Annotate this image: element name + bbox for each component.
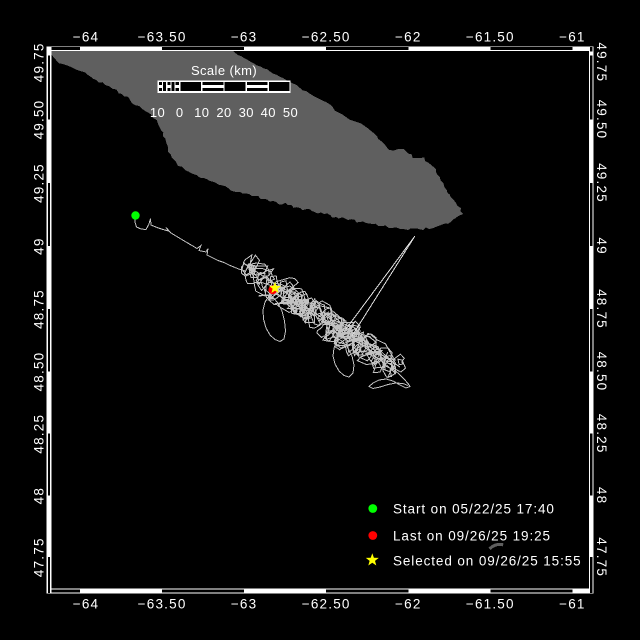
svg-text:0: 0 <box>176 105 184 120</box>
svg-text:−62: −62 <box>395 597 422 612</box>
svg-text:−63.50: −63.50 <box>138 30 187 45</box>
svg-text:49.50: 49.50 <box>32 100 47 140</box>
svg-text:48.50: 48.50 <box>32 352 47 392</box>
svg-text:Scale (km): Scale (km) <box>191 63 257 78</box>
svg-text:−63: −63 <box>231 30 258 45</box>
svg-text:10: 10 <box>150 105 165 120</box>
svg-text:−63: −63 <box>231 597 258 612</box>
svg-text:48.25: 48.25 <box>32 414 47 454</box>
svg-text:49: 49 <box>32 237 47 254</box>
svg-text:20: 20 <box>216 105 231 120</box>
svg-text:49: 49 <box>594 237 609 254</box>
svg-text:−62.50: −62.50 <box>302 30 351 45</box>
svg-text:Selected on 09/26/25 15:55: Selected on 09/26/25 15:55 <box>393 554 582 569</box>
svg-text:−61: −61 <box>559 30 586 45</box>
svg-text:−61.50: −61.50 <box>466 597 515 612</box>
svg-text:48: 48 <box>594 487 609 504</box>
svg-text:49.75: 49.75 <box>32 42 47 82</box>
svg-text:48: 48 <box>32 487 47 504</box>
svg-text:49.25: 49.25 <box>594 163 609 203</box>
svg-text:−64: −64 <box>73 597 100 612</box>
svg-text:48.25: 48.25 <box>594 414 609 454</box>
svg-text:−62.50: −62.50 <box>302 597 351 612</box>
svg-text:−64: −64 <box>73 30 100 45</box>
svg-text:40: 40 <box>261 105 276 120</box>
svg-text:−63.50: −63.50 <box>138 597 187 612</box>
svg-text:30: 30 <box>239 105 254 120</box>
svg-text:47.75: 47.75 <box>32 537 47 577</box>
svg-text:Start on 05/22/25 17:40: Start on 05/22/25 17:40 <box>393 502 555 517</box>
svg-text:10: 10 <box>194 105 209 120</box>
svg-text:−61.50: −61.50 <box>466 30 515 45</box>
svg-text:Last on 09/26/25 19:25: Last on 09/26/25 19:25 <box>393 529 551 544</box>
svg-text:48.50: 48.50 <box>594 352 609 392</box>
svg-text:49.75: 49.75 <box>594 42 609 82</box>
svg-text:49.50: 49.50 <box>594 100 609 140</box>
svg-text:48.75: 48.75 <box>32 289 47 329</box>
svg-text:47.75: 47.75 <box>594 537 609 577</box>
svg-text:−61: −61 <box>559 597 586 612</box>
svg-text:48.75: 48.75 <box>594 289 609 329</box>
svg-text:49.25: 49.25 <box>32 163 47 203</box>
svg-text:50: 50 <box>283 105 298 120</box>
svg-text:−62: −62 <box>395 30 422 45</box>
